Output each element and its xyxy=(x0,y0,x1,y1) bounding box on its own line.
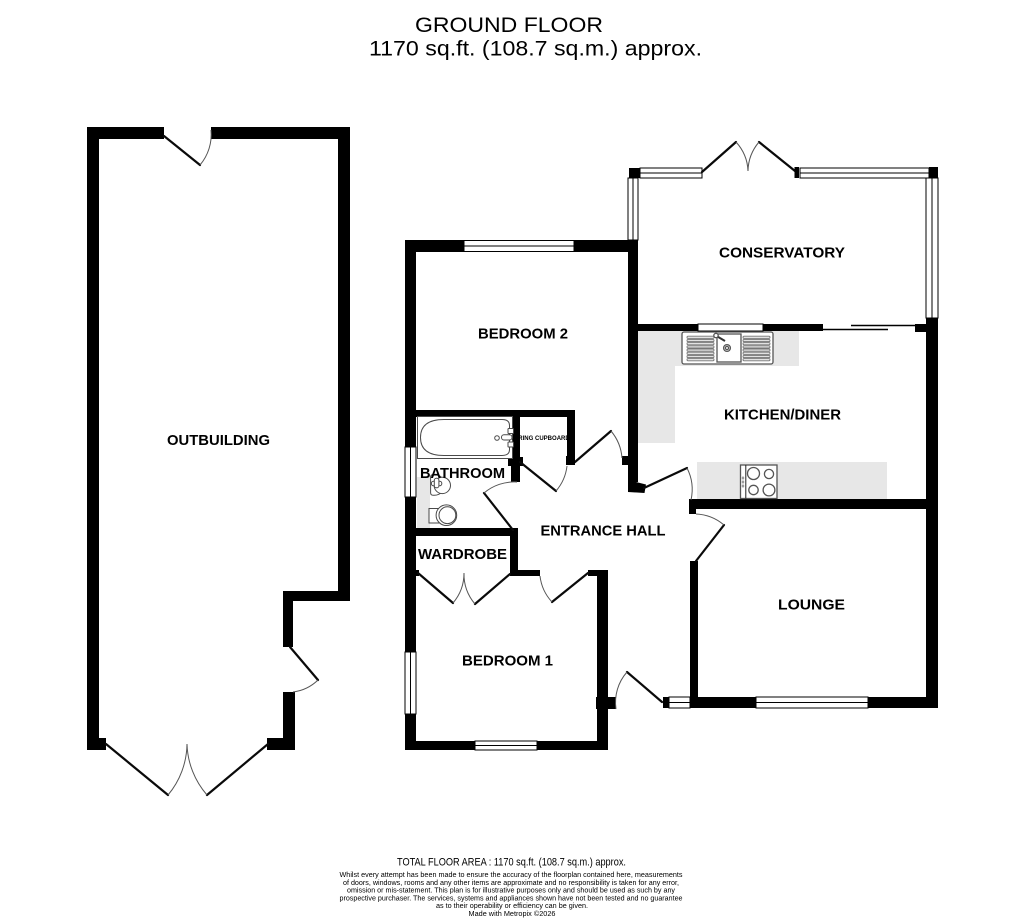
svg-text:GROUND FLOOR: GROUND FLOOR xyxy=(415,14,603,37)
svg-text:CONSERVATORY: CONSERVATORY xyxy=(719,245,845,262)
svg-text:1170 sq.ft. (108.7 sq.m.) appr: 1170 sq.ft. (108.7 sq.m.) approx. xyxy=(369,38,702,61)
svg-text:OUTBUILDING: OUTBUILDING xyxy=(167,432,270,449)
svg-text:KITCHEN/DINER: KITCHEN/DINER xyxy=(724,407,841,424)
svg-text:BEDROOM 2: BEDROOM 2 xyxy=(478,326,568,343)
svg-text:TOTAL FLOOR AREA : 1170 sq.ft.: TOTAL FLOOR AREA : 1170 sq.ft. (108.7 sq… xyxy=(397,857,626,869)
svg-text:WARDROBE: WARDROBE xyxy=(418,546,507,563)
svg-text:BATHROOM: BATHROOM xyxy=(420,465,505,482)
svg-text:BEDROOM 1: BEDROOM 1 xyxy=(462,653,553,670)
svg-text:Made with Metropix ©2026: Made with Metropix ©2026 xyxy=(469,909,556,918)
svg-text:AIRING CUPBOARD: AIRING CUPBOARD xyxy=(512,435,570,442)
svg-text:ENTRANCE HALL: ENTRANCE HALL xyxy=(541,523,666,540)
svg-text:LOUNGE: LOUNGE xyxy=(778,597,845,614)
